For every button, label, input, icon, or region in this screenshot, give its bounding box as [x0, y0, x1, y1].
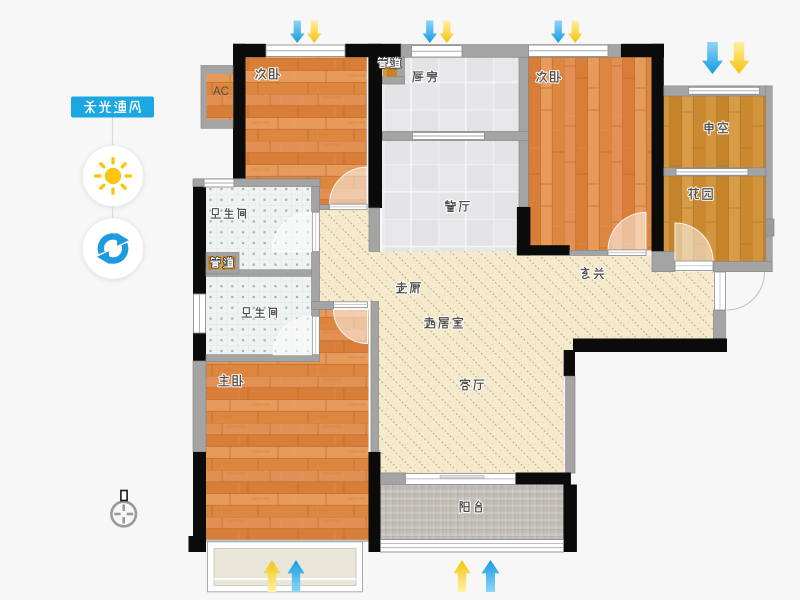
- svg-text:AC: AC: [213, 86, 229, 98]
